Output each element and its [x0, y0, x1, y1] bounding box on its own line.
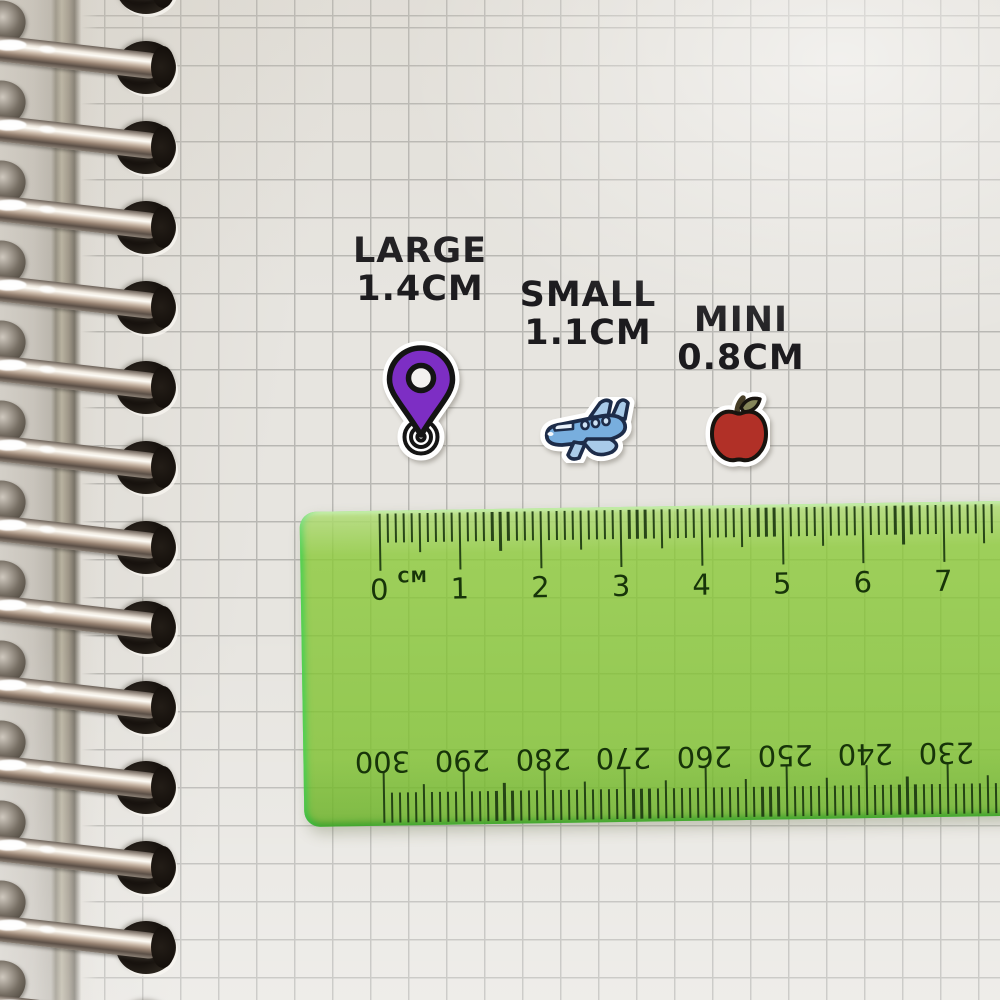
mm-number: 260 [676, 739, 732, 774]
mm-tick [737, 787, 740, 817]
mm-tick [689, 788, 692, 818]
cm-tick [644, 510, 647, 539]
mm-tick [971, 783, 974, 813]
mm-tick [471, 791, 474, 821]
mm-tick [874, 785, 877, 815]
cm-tick [733, 508, 736, 537]
mm-tick [640, 789, 643, 819]
mm-tick [552, 790, 555, 820]
cm-tick [426, 513, 429, 542]
mm-tick [761, 787, 764, 817]
cm-tick [829, 507, 832, 536]
mm-tick [713, 788, 716, 818]
cm-tick [604, 510, 607, 539]
mm-tick [939, 784, 942, 814]
cm-number: 1 [450, 571, 469, 605]
mm-tick [600, 789, 603, 819]
mm-number: 290 [435, 743, 491, 778]
mm-tick [431, 792, 434, 822]
mm-tick [560, 790, 563, 820]
mm-tick [415, 792, 418, 822]
mm-tick [955, 784, 958, 814]
mm-number: 230 [918, 735, 974, 770]
cm-tick [547, 511, 550, 540]
mm-tick [802, 786, 805, 816]
cm-tick [894, 506, 897, 535]
location-pin-sticker-icon [382, 341, 460, 463]
mm-tick [528, 790, 531, 820]
cm-tick [515, 512, 518, 541]
cm-tick [531, 511, 534, 540]
mm-tick [390, 793, 393, 823]
cm-number: 0 [370, 573, 389, 607]
cm-tick [741, 508, 744, 547]
cm-tick [934, 505, 937, 534]
cm-tick [942, 505, 945, 562]
binder-hole-inner [151, 526, 175, 568]
cm-tick [580, 511, 583, 550]
mm-tick [399, 792, 402, 822]
mm-tick [850, 785, 853, 815]
ruler-cm-ticks [300, 504, 1000, 575]
mm-tick [785, 766, 788, 816]
cm-number: 7 [934, 564, 953, 598]
mm-tick [890, 785, 893, 815]
notebook-photo: LARGE 1.4CM SMALL 1.1CM MINI 0.8CM [0, 0, 1000, 1000]
green-ruler: 01234567 CM 300290280270260250240230 [300, 501, 1000, 827]
cm-tick [386, 514, 389, 543]
mm-tick [818, 786, 821, 816]
cm-tick [418, 513, 421, 552]
binder-hole-inner [151, 286, 175, 328]
airplane-sticker-icon [540, 397, 636, 463]
mm-tick [963, 784, 966, 814]
cm-tick [499, 512, 502, 551]
mm-tick [946, 764, 949, 814]
cm-tick [402, 513, 405, 542]
cm-tick [725, 508, 728, 537]
cm-tick [410, 513, 413, 542]
cm-tick [910, 505, 913, 534]
cm-number: 6 [853, 565, 872, 599]
mm-tick [624, 769, 627, 819]
binder-hole-inner [151, 686, 175, 728]
cm-tick [781, 507, 784, 564]
mm-tick [906, 776, 909, 814]
cm-tick [636, 510, 639, 539]
ruler-unit-label: CM [397, 567, 428, 586]
cm-tick [628, 510, 631, 539]
mm-tick [463, 771, 466, 821]
mm-tick [519, 791, 522, 821]
mm-tick [495, 791, 498, 821]
binder-hole-inner [151, 766, 175, 808]
cm-tick [660, 509, 663, 548]
cm-tick [668, 509, 671, 538]
mm-tick [930, 784, 933, 814]
mm-number: 240 [838, 737, 894, 772]
cm-tick [773, 508, 776, 537]
mm-number: 300 [354, 744, 410, 779]
mm-tick [842, 786, 845, 816]
cm-tick [612, 510, 615, 539]
cm-tick [797, 507, 800, 536]
binder-hole-inner [151, 206, 175, 248]
binder-hole-inner [151, 446, 175, 488]
mm-number: 280 [515, 742, 571, 777]
cm-tick [596, 510, 599, 539]
cm-tick [507, 512, 510, 541]
mm-tick [536, 790, 539, 820]
cm-tick [684, 509, 687, 538]
mm-tick [656, 788, 659, 818]
binder-hole-inner [151, 606, 175, 648]
mm-tick [503, 783, 506, 821]
mm-tick [608, 789, 611, 819]
cm-tick [958, 505, 961, 534]
cm-tick [475, 512, 478, 541]
cm-tick [805, 507, 808, 536]
binder-hole-inner [151, 126, 175, 168]
cm-tick [451, 513, 454, 542]
mm-tick [447, 792, 450, 822]
mm-tick [882, 785, 885, 815]
cm-tick [652, 509, 655, 538]
binder-hole-inner [151, 926, 175, 968]
binder-hole-inner [151, 846, 175, 888]
cm-tick [467, 512, 470, 541]
mm-tick [866, 765, 869, 815]
cm-tick [692, 509, 695, 538]
cm-tick [966, 505, 969, 534]
cm-tick [991, 504, 994, 533]
cm-tick [483, 512, 486, 541]
mm-tick [592, 789, 595, 819]
cm-tick [378, 514, 381, 571]
cm-tick [974, 504, 977, 533]
mm-tick [914, 784, 917, 814]
mm-tick [382, 773, 385, 823]
mm-tick [777, 787, 780, 817]
mm-tick [704, 768, 707, 818]
cm-tick [588, 510, 591, 539]
mm-tick [826, 778, 829, 816]
cm-tick [749, 508, 752, 537]
mm-tick [576, 790, 579, 820]
cm-tick [870, 506, 873, 535]
size-label-large-title: LARGE [295, 232, 545, 270]
cm-tick [918, 505, 921, 534]
mm-tick [753, 787, 756, 817]
mm-tick [995, 783, 998, 813]
cm-tick [676, 509, 679, 538]
cm-tick [563, 511, 566, 540]
cm-tick [717, 508, 720, 537]
mm-tick [987, 775, 990, 813]
mm-tick [632, 789, 635, 819]
mm-tick [769, 787, 772, 817]
mm-tick [584, 782, 587, 820]
cm-tick [708, 509, 711, 538]
mm-tick [455, 792, 458, 822]
cm-number: 5 [773, 566, 792, 600]
size-label-mini-value: 0.8CM [616, 339, 866, 377]
cm-tick [813, 507, 816, 536]
cm-number: 2 [531, 570, 550, 604]
cm-tick [845, 506, 848, 535]
binder-hole-inner [151, 46, 175, 88]
cm-tick [878, 506, 881, 535]
cm-tick [765, 508, 768, 537]
cm-tick [837, 507, 840, 536]
cm-tick [854, 506, 857, 535]
mm-tick [648, 789, 651, 819]
mm-number: 270 [596, 741, 652, 776]
mm-tick [479, 791, 482, 821]
cm-tick [886, 506, 889, 535]
size-label-mini-title: MINI [616, 301, 866, 339]
mm-tick [439, 792, 442, 822]
mm-tick [423, 784, 426, 822]
mm-tick [673, 788, 676, 818]
cm-tick [459, 512, 462, 569]
cm-tick [821, 507, 824, 546]
cm-tick [700, 509, 703, 566]
cm-tick [926, 505, 929, 534]
mm-tick [793, 786, 796, 816]
mm-tick [681, 788, 684, 818]
cm-tick [620, 510, 623, 567]
apple-sticker-icon [704, 391, 770, 467]
cm-number: 3 [612, 569, 631, 603]
mm-tick [616, 789, 619, 819]
mm-tick [487, 791, 490, 821]
mm-tick [898, 785, 901, 815]
mm-tick [745, 779, 748, 817]
mm-tick [834, 786, 837, 816]
mm-tick [721, 787, 724, 817]
cm-tick [982, 504, 985, 543]
cm-number: 4 [692, 568, 711, 602]
mm-tick [568, 790, 571, 820]
size-label-mini: MINI 0.8CM [616, 301, 866, 377]
mm-tick [697, 788, 700, 818]
mm-tick [979, 783, 982, 813]
cm-tick [394, 513, 397, 542]
cm-tick [757, 508, 760, 537]
mm-number: 250 [757, 738, 813, 773]
cm-tick [571, 511, 574, 540]
mm-tick [407, 792, 410, 822]
cm-tick [902, 506, 905, 545]
cm-tick [491, 512, 494, 541]
cm-tick [555, 511, 558, 540]
cm-tick [523, 511, 526, 540]
binder-hole-inner [151, 366, 175, 408]
mm-tick [858, 785, 861, 815]
mm-tick [543, 770, 546, 820]
mm-tick [922, 784, 925, 814]
cm-tick [950, 505, 953, 534]
cm-tick [539, 511, 542, 568]
mm-tick [664, 780, 667, 818]
mm-tick [511, 791, 514, 821]
mm-tick [810, 786, 813, 816]
cm-tick [862, 506, 865, 563]
mm-tick [729, 787, 732, 817]
cm-tick [443, 513, 446, 542]
cm-tick [434, 513, 437, 542]
cm-tick [789, 507, 792, 536]
